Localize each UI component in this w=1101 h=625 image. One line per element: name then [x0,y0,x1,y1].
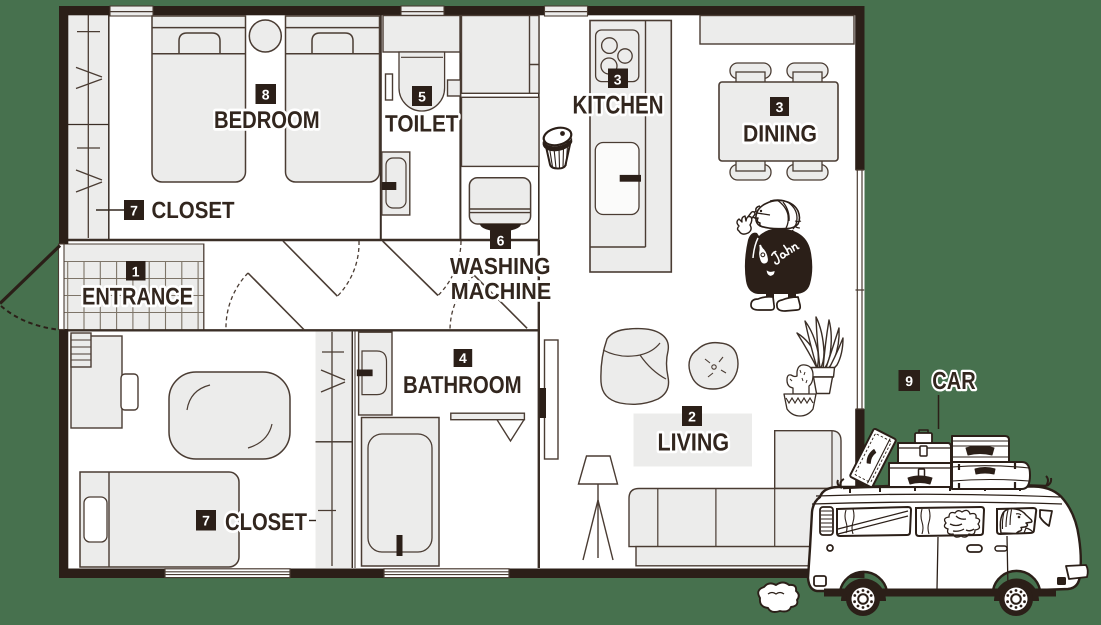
svg-text:KITCHEN: KITCHEN [573,92,664,120]
svg-text:3: 3 [614,71,622,87]
svg-text:MACHINE: MACHINE [451,278,551,304]
svg-text:CLOSET: CLOSET [225,509,307,536]
svg-text:TOILET: TOILET [385,112,459,138]
svg-text:4: 4 [459,350,467,366]
svg-text:WASHING: WASHING [450,253,551,279]
svg-text:LIVING: LIVING [658,430,730,457]
svg-text:7: 7 [202,513,210,529]
svg-text:6: 6 [497,233,505,249]
svg-text:9: 9 [905,373,913,389]
svg-text:5: 5 [418,88,426,104]
svg-text:8: 8 [262,86,270,102]
svg-text:2: 2 [688,408,696,424]
svg-text:7: 7 [130,202,138,218]
svg-text:CAR: CAR [932,368,976,395]
svg-text:3: 3 [776,99,784,115]
svg-text:1: 1 [132,263,140,279]
svg-text:CLOSET: CLOSET [152,197,236,223]
svg-text:BATHROOM: BATHROOM [403,372,522,399]
svg-text:ENTRANCE: ENTRANCE [82,284,193,311]
svg-text:DINING: DINING [743,122,817,148]
svg-text:BEDROOM: BEDROOM [214,107,320,134]
